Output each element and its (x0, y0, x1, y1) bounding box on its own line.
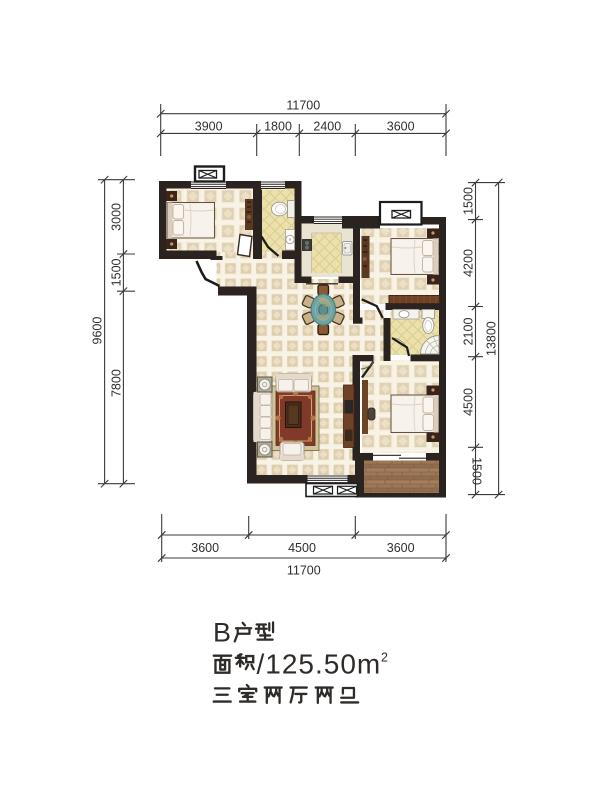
svg-text:3600: 3600 (191, 541, 219, 555)
svg-text:2: 2 (381, 651, 388, 665)
svg-text:4500: 4500 (288, 541, 316, 555)
svg-text:13800: 13800 (485, 321, 499, 356)
svg-text:1500: 1500 (462, 187, 476, 215)
svg-text:11700: 11700 (286, 99, 320, 113)
svg-text:1500: 1500 (470, 457, 484, 485)
svg-text:2100: 2100 (462, 318, 476, 346)
svg-text:3900: 3900 (195, 119, 223, 133)
svg-text:2400: 2400 (313, 119, 341, 133)
svg-text:3000: 3000 (109, 203, 123, 231)
svg-text:9600: 9600 (91, 317, 105, 345)
svg-text:4200: 4200 (462, 249, 476, 277)
svg-text:3600: 3600 (387, 541, 415, 555)
svg-text:/125.50m: /125.50m (257, 649, 382, 680)
svg-text:3600: 3600 (387, 119, 415, 133)
svg-text:7800: 7800 (109, 369, 123, 397)
svg-text:1800: 1800 (264, 119, 292, 133)
svg-text:4500: 4500 (462, 388, 476, 416)
svg-text:11700: 11700 (287, 564, 321, 578)
svg-text:1500: 1500 (109, 258, 123, 286)
svg-text:B: B (213, 618, 231, 648)
